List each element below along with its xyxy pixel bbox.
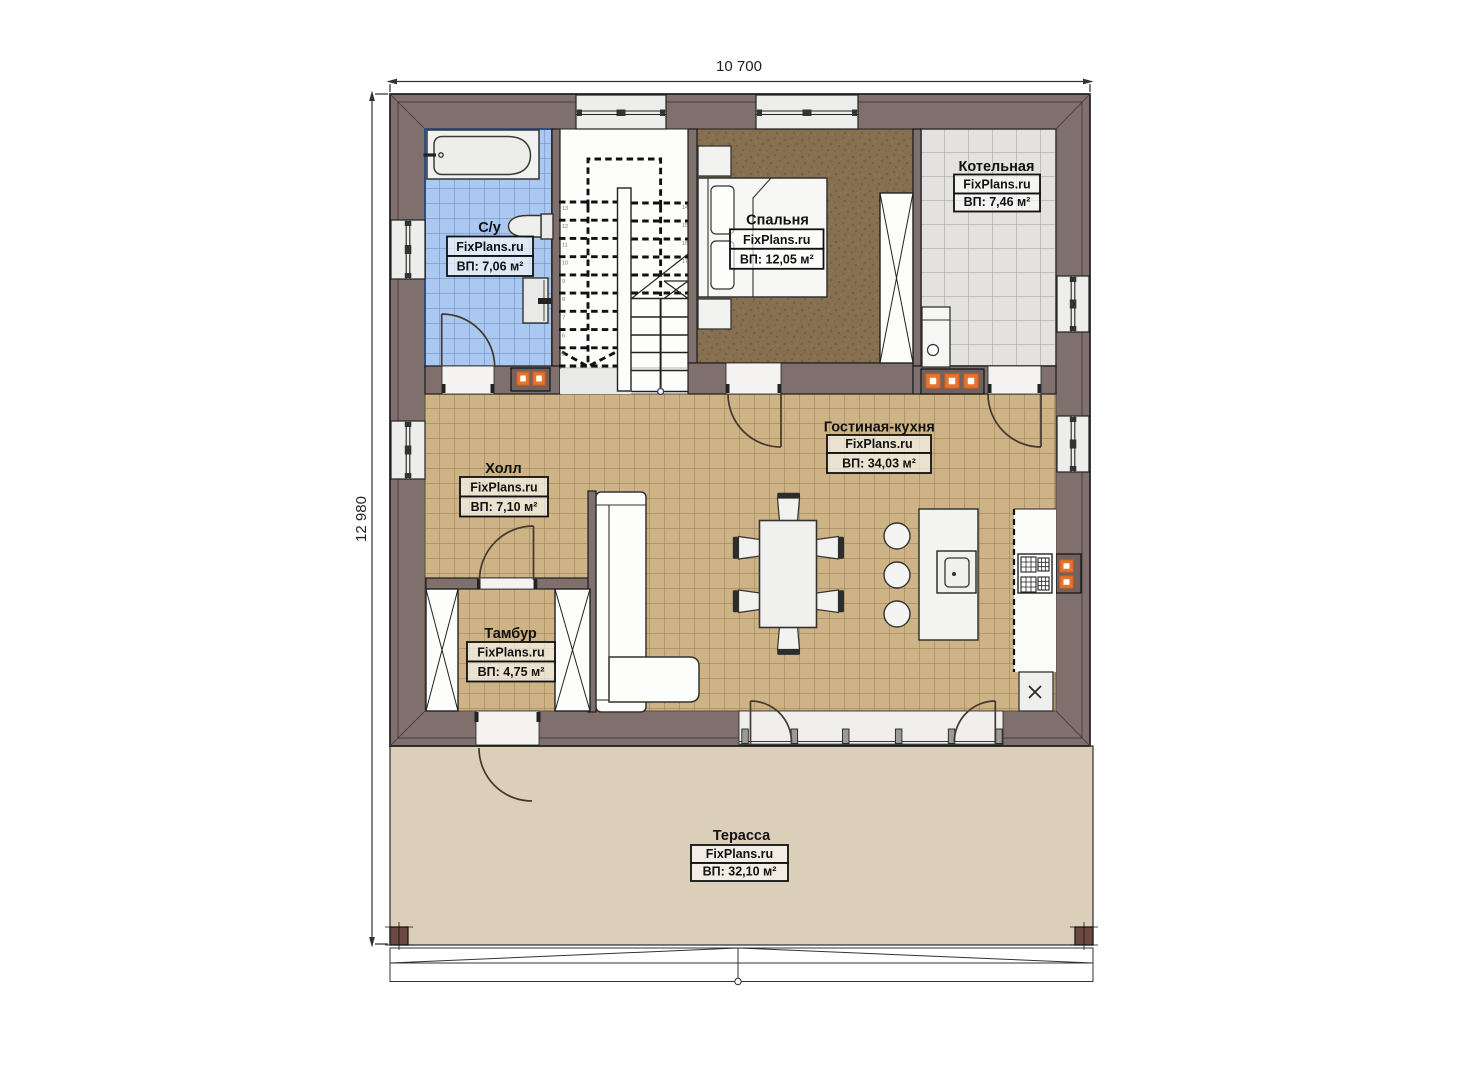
svg-text:Котельная: Котельная: [959, 159, 1035, 175]
svg-text:С/у: С/у: [478, 220, 501, 236]
svg-text:12 980: 12 980: [353, 496, 370, 542]
svg-text:FixPlans.ru: FixPlans.ru: [706, 847, 773, 861]
svg-text:14: 14: [682, 205, 688, 211]
svg-text:ВП: 7,46 м²: ВП: 7,46 м²: [964, 195, 1031, 209]
svg-text:ВП: 7,10 м²: ВП: 7,10 м²: [471, 500, 538, 514]
svg-text:FixPlans.ru: FixPlans.ru: [963, 178, 1030, 192]
svg-text:17: 17: [682, 259, 688, 265]
svg-text:8: 8: [562, 297, 565, 303]
svg-text:ВП: 12,05 м²: ВП: 12,05 м²: [740, 252, 814, 266]
svg-text:FixPlans.ru: FixPlans.ru: [456, 240, 523, 254]
svg-text:12: 12: [562, 224, 568, 230]
svg-text:Тамбур: Тамбур: [484, 626, 537, 642]
svg-text:10 700: 10 700: [716, 58, 762, 75]
svg-text:ВП: 7,06 м²: ВП: 7,06 м²: [457, 260, 524, 274]
svg-text:ВП: 4,75 м²: ВП: 4,75 м²: [478, 665, 545, 679]
svg-text:16: 16: [682, 241, 688, 247]
svg-text:Гостиная-кухня: Гостиная-кухня: [824, 420, 935, 436]
svg-text:Терасса: Терасса: [713, 828, 771, 844]
svg-text:11: 11: [562, 242, 568, 248]
svg-text:5: 5: [562, 352, 565, 358]
svg-text:FixPlans.ru: FixPlans.ru: [845, 437, 912, 451]
svg-text:ВП: 34,03 м²: ВП: 34,03 м²: [842, 457, 916, 471]
svg-text:10: 10: [562, 261, 568, 267]
svg-text:FixPlans.ru: FixPlans.ru: [743, 233, 810, 247]
svg-text:Холл: Холл: [485, 461, 521, 477]
svg-text:Спальня: Спальня: [746, 213, 809, 229]
svg-text:15: 15: [682, 223, 688, 229]
svg-text:13: 13: [562, 206, 568, 212]
svg-text:9: 9: [562, 279, 565, 285]
svg-text:7: 7: [562, 315, 565, 321]
svg-text:FixPlans.ru: FixPlans.ru: [477, 646, 544, 660]
svg-text:FixPlans.ru: FixPlans.ru: [470, 481, 537, 495]
svg-text:6: 6: [562, 334, 565, 340]
svg-text:ВП: 32,10 м²: ВП: 32,10 м²: [703, 865, 777, 879]
